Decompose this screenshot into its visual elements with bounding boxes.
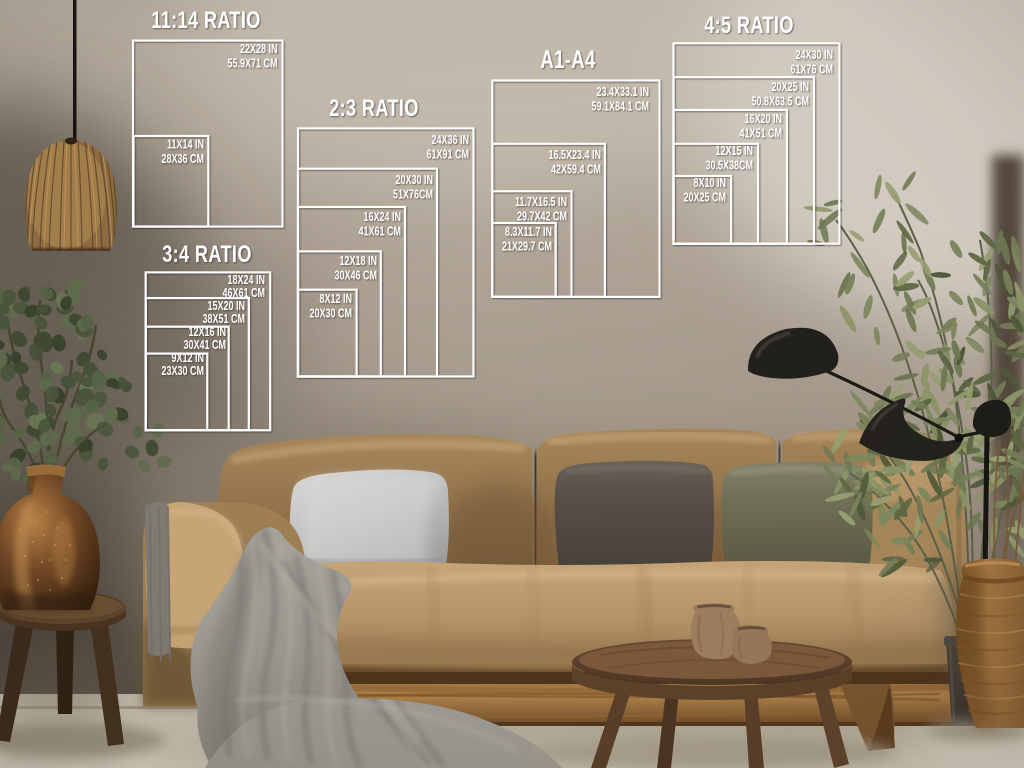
svg-text:15X20 IN: 15X20 IN — [208, 300, 246, 314]
svg-text:20X25 CM: 20X25 CM — [684, 191, 726, 205]
svg-text:11X14 IN: 11X14 IN — [167, 138, 204, 152]
svg-text:16X24 IN: 16X24 IN — [364, 211, 402, 225]
svg-text:41X61 CM: 41X61 CM — [359, 225, 401, 239]
svg-text:61X76 CM: 61X76 CM — [791, 63, 833, 77]
svg-text:8X10 IN: 8X10 IN — [694, 177, 727, 191]
svg-text:16.5X23.4 IN: 16.5X23.4 IN — [549, 149, 602, 163]
svg-text:20X25 IN: 20X25 IN — [772, 81, 810, 95]
svg-text:12X18 IN: 12X18 IN — [340, 255, 378, 269]
svg-text:59.1X84.1 CM: 59.1X84.1 CM — [592, 100, 649, 114]
svg-text:4:5 RATIO: 4:5 RATIO — [704, 10, 794, 38]
svg-text:55.9X71 CM: 55.9X71 CM — [228, 57, 278, 71]
svg-text:28X36 CM: 28X36 CM — [162, 153, 204, 167]
svg-text:30X41 CM: 30X41 CM — [184, 339, 226, 353]
svg-text:30.5X38CM: 30.5X38CM — [706, 159, 753, 173]
svg-text:11:14 RATIO: 11:14 RATIO — [151, 5, 261, 33]
svg-text:24X36 IN: 24X36 IN — [432, 134, 470, 148]
svg-text:29.7X42 CM: 29.7X42 CM — [517, 210, 567, 224]
svg-text:12X16 IN: 12X16 IN — [189, 326, 227, 340]
svg-text:23X30 CM: 23X30 CM — [162, 365, 204, 379]
svg-text:8X12 IN: 8X12 IN — [320, 293, 353, 307]
svg-text:22X28 IN: 22X28 IN — [240, 43, 278, 57]
svg-text:3:4 RATIO: 3:4 RATIO — [162, 239, 252, 267]
svg-text:20X30 CM: 20X30 CM — [310, 307, 352, 321]
svg-text:61X91 CM: 61X91 CM — [427, 148, 469, 162]
svg-text:20X30 IN: 20X30 IN — [396, 174, 434, 188]
svg-text:A1-A4: A1-A4 — [540, 45, 596, 73]
svg-text:42X59.4 CM: 42X59.4 CM — [551, 163, 601, 177]
svg-text:23.4X33.1 IN: 23.4X33.1 IN — [597, 86, 650, 100]
svg-text:30X46 CM: 30X46 CM — [335, 269, 377, 283]
svg-text:2:3 RATIO: 2:3 RATIO — [329, 93, 419, 121]
svg-text:51X76CM: 51X76CM — [393, 188, 433, 202]
svg-text:24X30 IN: 24X30 IN — [796, 49, 834, 63]
svg-text:16X20 IN: 16X20 IN — [745, 113, 783, 127]
svg-text:46X61 CM: 46X61 CM — [223, 287, 265, 301]
svg-text:12X15 IN: 12X15 IN — [716, 145, 754, 159]
svg-text:18X24 IN: 18X24 IN — [228, 274, 266, 288]
svg-text:50.8X63.5 CM: 50.8X63.5 CM — [752, 95, 809, 109]
svg-text:38X51 CM: 38X51 CM — [203, 313, 245, 327]
svg-text:21X29.7 CM: 21X29.7 CM — [502, 240, 552, 254]
svg-text:41X51 CM: 41X51 CM — [740, 127, 782, 141]
svg-text:8.3X11.7 IN: 8.3X11.7 IN — [505, 226, 552, 240]
svg-text:9X12 IN: 9X12 IN — [172, 352, 205, 366]
svg-text:11.7X16.5 IN: 11.7X16.5 IN — [515, 196, 567, 210]
